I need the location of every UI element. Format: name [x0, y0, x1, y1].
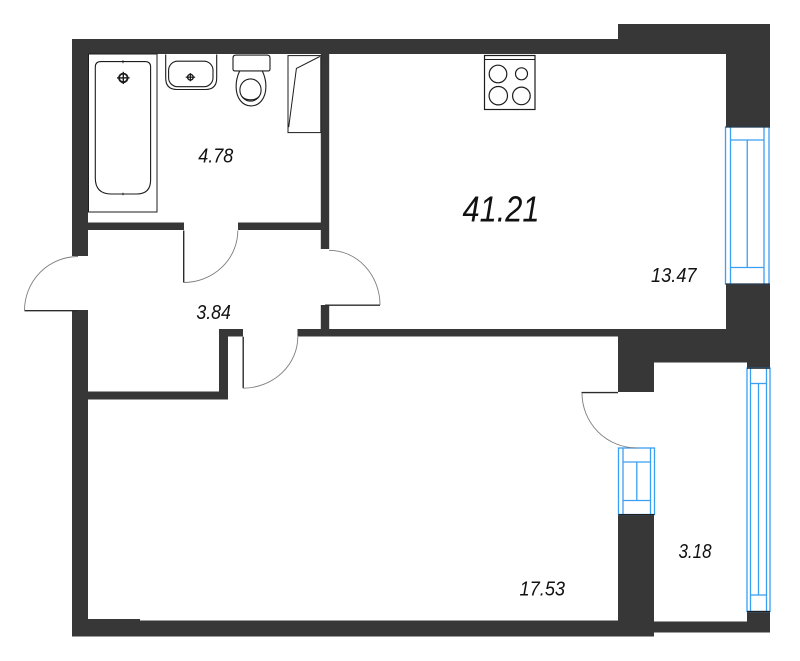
svg-text:41.21: 41.21 [463, 189, 540, 230]
svg-text:4.78: 4.78 [198, 146, 233, 168]
svg-text:3.84: 3.84 [196, 302, 231, 324]
svg-text:3.18: 3.18 [679, 541, 712, 563]
svg-text:17.53: 17.53 [520, 579, 566, 601]
svg-text:13.47: 13.47 [651, 265, 697, 287]
